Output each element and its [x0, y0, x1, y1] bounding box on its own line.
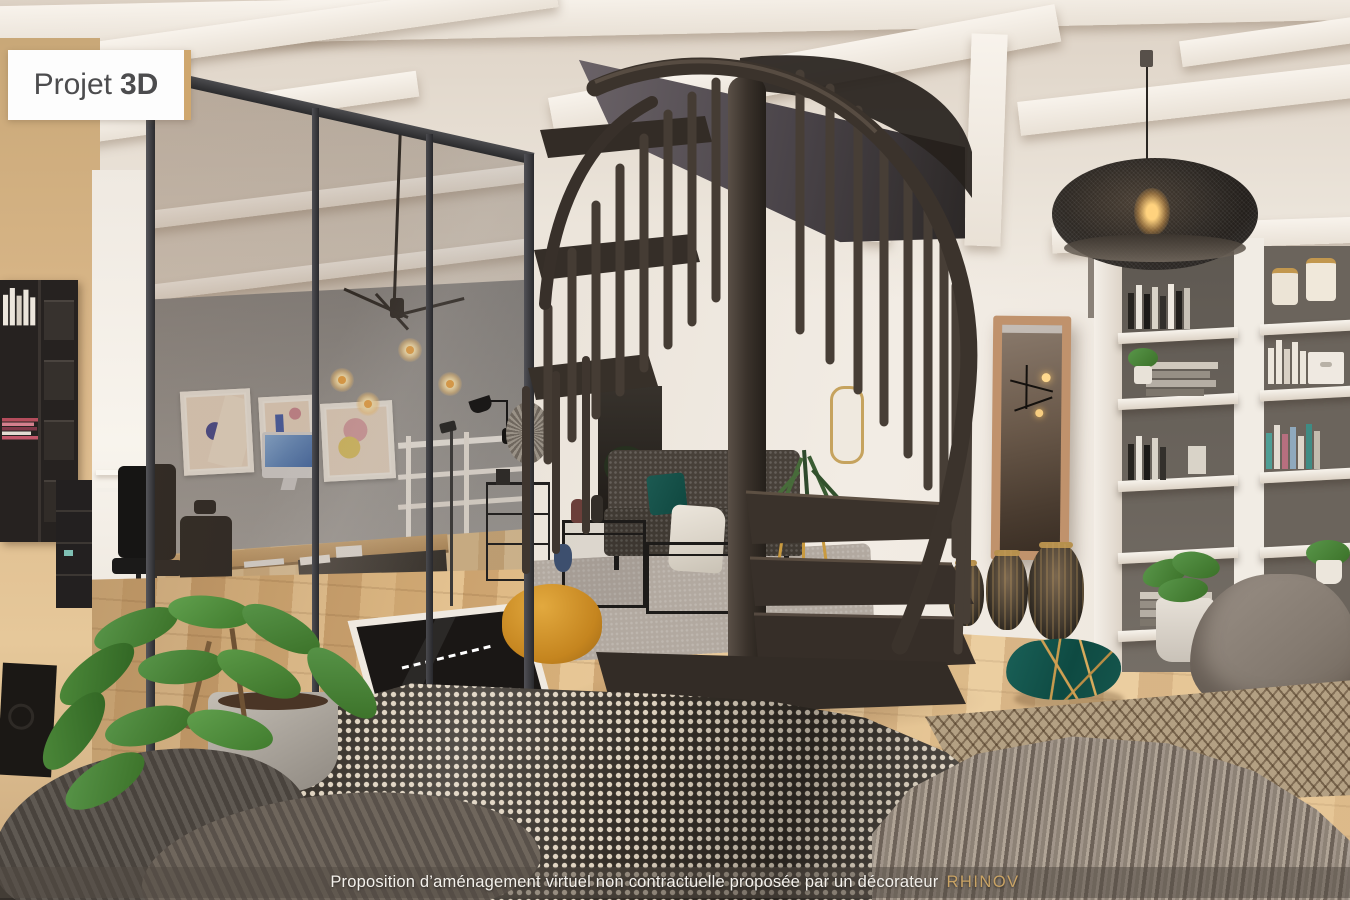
pendant-mount	[1140, 50, 1153, 67]
jar	[1306, 258, 1336, 301]
shelf-divider	[38, 280, 41, 542]
floor-lamp	[440, 422, 464, 608]
shelf-book-stack	[1146, 362, 1218, 398]
drawer-line	[56, 510, 96, 512]
pendant-lamp	[1052, 158, 1258, 270]
shelf-plant	[1128, 348, 1158, 368]
bookshelf-pilaster	[1094, 240, 1122, 672]
project-3d-badge: Projet 3D	[8, 50, 191, 120]
drawer-label	[64, 550, 73, 556]
storage-box	[44, 360, 74, 400]
drawer-line	[56, 574, 96, 576]
interior-3d-render: Projet 3D Proposition d’aménagement virt…	[0, 0, 1350, 900]
storage-box	[44, 420, 74, 460]
partition-mullion	[146, 70, 155, 812]
shelf-books	[1128, 284, 1190, 329]
colored-books-stack	[2, 418, 38, 441]
shelf-books	[1128, 436, 1166, 480]
pen-cup	[1188, 446, 1206, 474]
jar	[1272, 268, 1298, 305]
spiral-staircase	[500, 30, 1020, 750]
pendant-rim	[1064, 234, 1246, 262]
file-cabinet	[56, 480, 96, 608]
pendant-glow	[1134, 188, 1170, 236]
partition-mullion	[426, 134, 433, 730]
shelf-books	[1266, 424, 1320, 469]
caption-text: Proposition d’aménagement virtuel non co…	[330, 873, 938, 892]
speaker-ring	[8, 703, 35, 730]
storage-box-white	[1308, 352, 1344, 384]
shelf-plant-pot	[1134, 366, 1152, 384]
floor-vase	[1028, 542, 1084, 640]
drawer-line	[56, 542, 96, 544]
shelf-plant-pot	[1316, 560, 1342, 584]
caption-brand: RHINOV	[946, 873, 1019, 892]
shelf-books	[1268, 340, 1306, 384]
binders	[3, 288, 35, 325]
badge-label: Projet	[34, 68, 112, 102]
pendant-cord	[1146, 56, 1148, 166]
ceiling-beam	[1017, 62, 1350, 136]
storage-box	[44, 300, 74, 340]
badge-label-bold: 3D	[120, 68, 158, 102]
caption-bar: Proposition d’aménagement virtuel non co…	[0, 867, 1350, 898]
